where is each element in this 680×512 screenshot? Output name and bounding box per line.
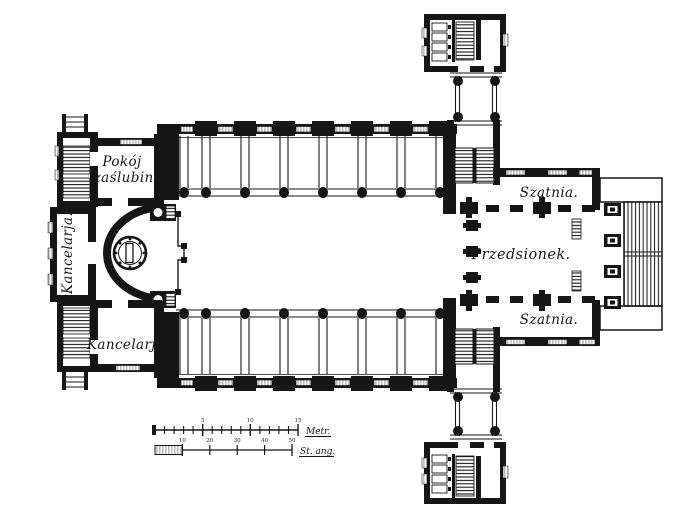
room-label-wedding-line1: Pokój [101, 154, 141, 170]
room-label-cloakroom-south: Szatnia. [520, 312, 578, 328]
south-aisle-beams [180, 318, 444, 374]
scale-label-english: St. ang. [300, 447, 335, 457]
north-annex-stair [456, 22, 474, 60]
vestibule-east-screens [572, 219, 581, 291]
vestibule-south-piers [460, 290, 595, 311]
north-porch-steps [62, 114, 88, 132]
entrance-pier-row [604, 203, 621, 309]
room-label-office-west: Kancelarja. [60, 212, 76, 295]
feet-tick-50: 50 [289, 438, 296, 444]
bimah-platform-edge [178, 214, 184, 292]
south-colonnade [176, 308, 450, 319]
north-colonnade [176, 187, 450, 198]
south-portico [450, 389, 502, 439]
apse [107, 204, 187, 308]
main-hall [157, 121, 457, 391]
south-annex-stair [456, 456, 474, 496]
room-label-vestibule: Przedsionek. [470, 247, 570, 263]
floor-plan-drawing: Pokój zaślubin. Kancelarja. [0, 0, 680, 512]
feet-tick-10: 10 [179, 438, 186, 444]
room-label-office-south: Kancelarja. [86, 337, 169, 353]
room-label-wedding-line2: zaślubin. [93, 170, 159, 186]
scale-bar-english-feet: 10 20 30 40 50 St. ang. [155, 438, 335, 457]
metric-tick-10: 10 [247, 418, 254, 424]
hall-south-wall [157, 375, 457, 392]
feet-tick-20: 20 [206, 438, 213, 444]
south-annex [422, 442, 508, 504]
room-label-cloakroom-north: Szatnia. [520, 185, 578, 201]
bimah [114, 237, 146, 269]
feet-tick-30: 30 [234, 438, 241, 444]
scale-bar-metric: 5 10 15 Metr. [152, 418, 331, 437]
feet-tick-40: 40 [261, 438, 268, 444]
hall-north-wall [157, 121, 457, 138]
south-porch-steps [62, 372, 88, 390]
grand-entrance-stair [600, 178, 662, 330]
north-portico [450, 73, 502, 125]
floor-plan-page: Pokój zaślubin. Kancelarja. [0, 0, 680, 512]
metric-tick-15: 15 [295, 418, 302, 424]
north-annex [422, 14, 508, 72]
metric-tick-5: 5 [201, 418, 205, 424]
scale-label-metric: Metr. [305, 427, 330, 437]
east-section: Szatnia. Przedsionek. [447, 120, 662, 392]
north-aisle-beams [180, 136, 444, 188]
